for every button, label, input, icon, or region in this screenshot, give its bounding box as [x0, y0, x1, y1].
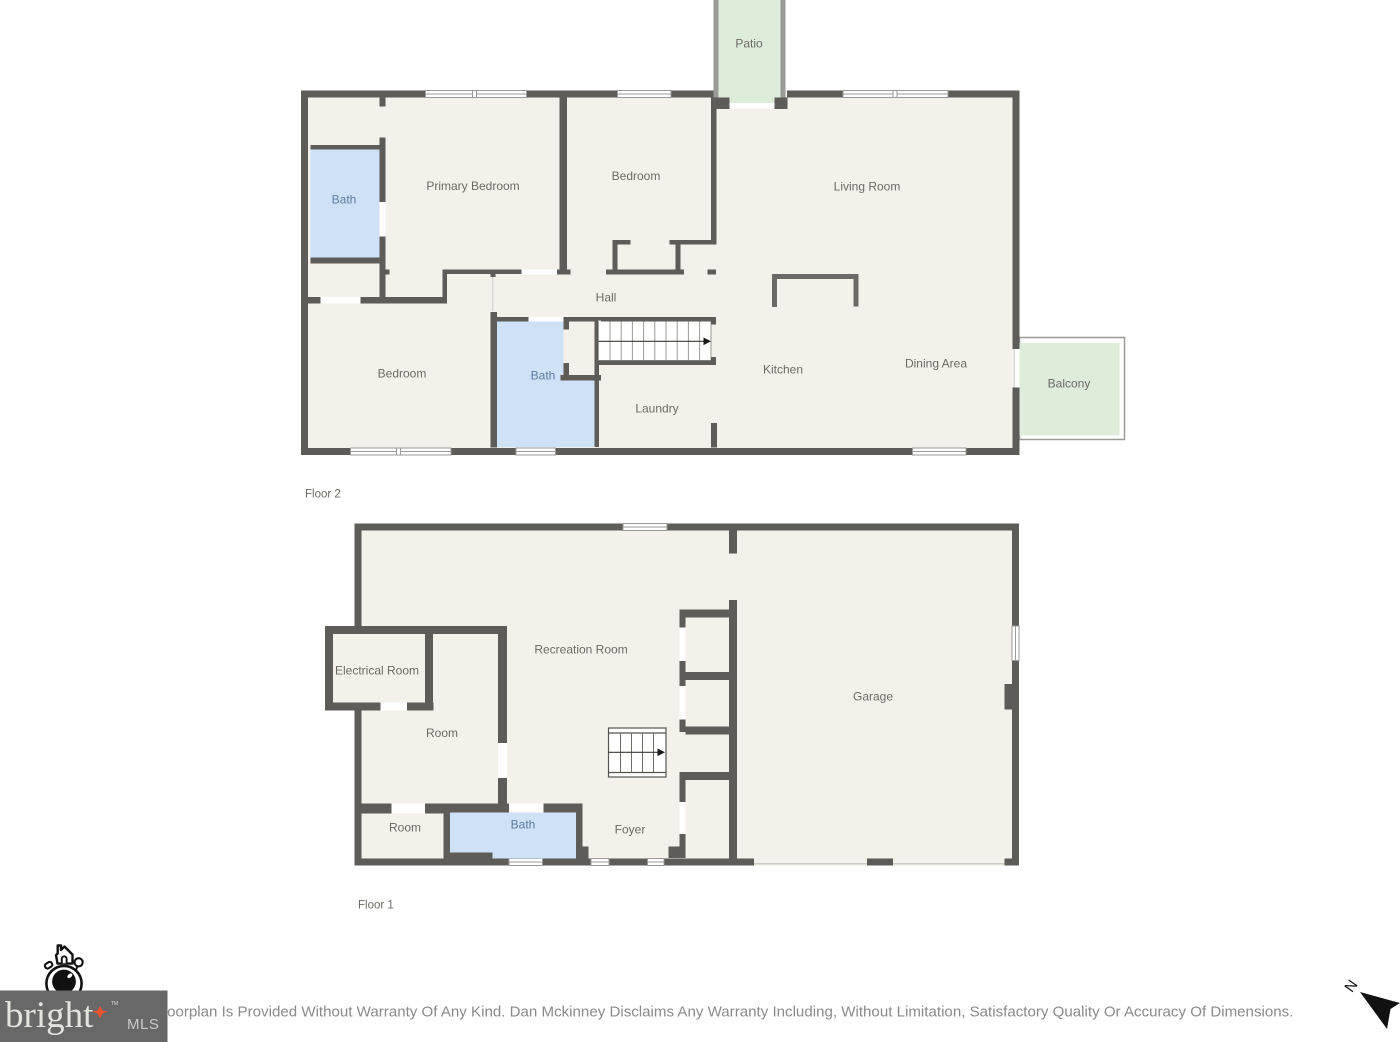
svg-text:Laundry: Laundry	[635, 402, 678, 416]
svg-text:Electrical Room: Electrical Room	[335, 664, 419, 678]
svg-text:Bedroom: Bedroom	[612, 169, 661, 183]
svg-text:Garage: Garage	[853, 690, 893, 704]
svg-text:Primary Bedroom: Primary Bedroom	[426, 179, 519, 193]
svg-text:Living Room: Living Room	[834, 180, 901, 194]
svg-text:Floor 2: Floor 2	[305, 489, 341, 501]
svg-text:TM: TM	[111, 1001, 118, 1007]
svg-text:Floorplan Is Provided Without: Floorplan Is Provided Without Warranty O…	[155, 1004, 1294, 1021]
svg-text:Bath: Bath	[511, 818, 536, 832]
svg-text:Patio: Patio	[735, 37, 763, 51]
svg-text:Dining Area: Dining Area	[905, 357, 967, 371]
svg-text:Hall: Hall	[596, 291, 617, 305]
svg-text:MLS: MLS	[127, 1016, 159, 1033]
svg-text:Balcony: Balcony	[1048, 377, 1091, 391]
svg-text:Kitchen: Kitchen	[763, 363, 803, 377]
svg-text:Recreation Room: Recreation Room	[534, 643, 627, 657]
svg-text:Bath: Bath	[332, 193, 357, 207]
svg-text:Floor 1: Floor 1	[358, 900, 394, 912]
svg-text:Bath: Bath	[531, 369, 556, 383]
svg-text:Bedroom: Bedroom	[378, 367, 427, 381]
svg-text:Foyer: Foyer	[615, 823, 646, 837]
svg-text:Room: Room	[426, 726, 458, 740]
svg-text:N: N	[1341, 977, 1361, 996]
svg-text:Room: Room	[389, 821, 421, 835]
svg-text:bright: bright	[5, 995, 94, 1036]
